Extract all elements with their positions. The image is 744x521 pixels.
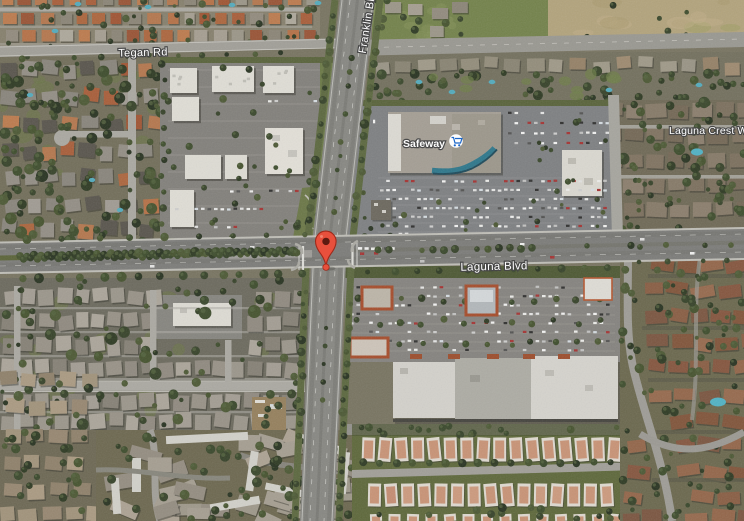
svg-text:Safeway: Safeway — [403, 138, 445, 150]
svg-text:Laguna Blvd: Laguna Blvd — [460, 260, 527, 273]
svg-text:Laguna Crest Wa: Laguna Crest Wa — [669, 125, 744, 137]
svg-text:Tegan Rd: Tegan Rd — [118, 46, 168, 59]
